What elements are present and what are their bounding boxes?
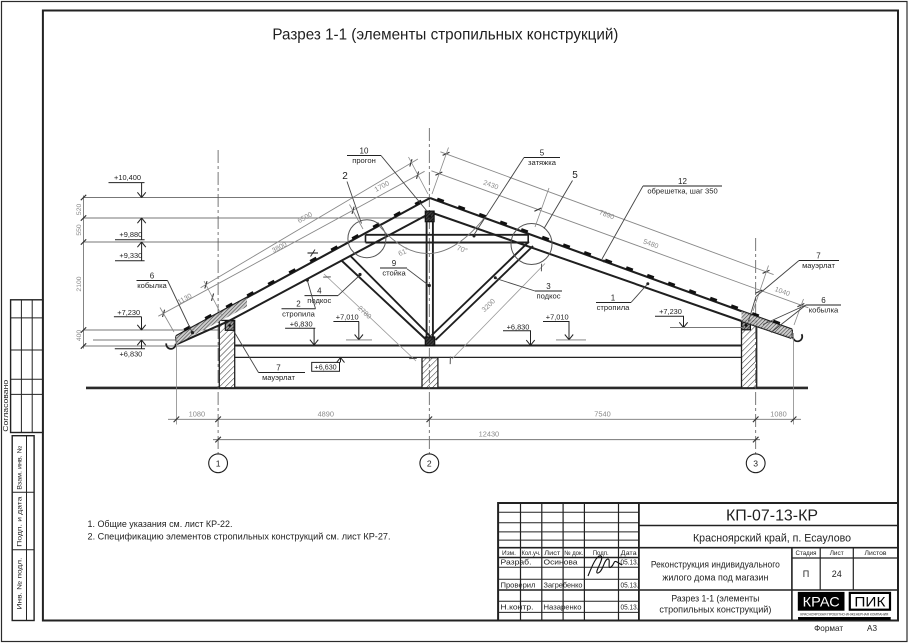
svg-text:1: 1 <box>216 459 221 469</box>
svg-text:Разраб.: Разраб. <box>501 558 532 567</box>
svg-text:Назаренко: Назаренко <box>544 602 582 611</box>
svg-text:стропила: стропила <box>282 309 316 318</box>
svg-text:12: 12 <box>678 177 687 186</box>
svg-text:7: 7 <box>816 252 821 261</box>
svg-text:А3: А3 <box>867 624 877 633</box>
svg-text:КРАС: КРАС <box>803 595 840 610</box>
svg-text:+6,830: +6,830 <box>119 349 142 358</box>
svg-text:Загребенко: Загребенко <box>544 580 583 589</box>
svg-text:Лист: Лист <box>544 550 560 557</box>
svg-text:КП-07-13-КР: КП-07-13-КР <box>726 508 818 525</box>
svg-text:+9,880: +9,880 <box>119 230 142 239</box>
svg-text:+7,230: +7,230 <box>659 307 682 316</box>
svg-text:1080: 1080 <box>189 409 205 418</box>
svg-text:Разрез 1-1 (элементы: Разрез 1-1 (элементы <box>671 594 759 604</box>
svg-text:2: 2 <box>427 459 432 469</box>
svg-text:9: 9 <box>392 259 397 268</box>
svg-text:Стадия: Стадия <box>796 550 817 557</box>
svg-text:мауэрлат: мауэрлат <box>262 373 295 382</box>
svg-text:+7,010: +7,010 <box>336 313 359 322</box>
svg-text:550: 550 <box>76 224 83 236</box>
svg-text:Подп. и дата: Подп. и дата <box>17 496 24 547</box>
svg-text:+6,830: +6,830 <box>507 322 530 331</box>
svg-text:7: 7 <box>276 364 281 373</box>
svg-text:5: 5 <box>572 170 578 181</box>
svg-text:Дата: Дата <box>621 550 637 557</box>
svg-text:6: 6 <box>150 272 155 281</box>
svg-text:5: 5 <box>540 149 545 158</box>
svg-text:стойка: стойка <box>382 269 406 278</box>
svg-text:4890: 4890 <box>318 409 334 418</box>
svg-text:Проверил: Проверил <box>501 580 536 589</box>
svg-text:кобылка: кобылка <box>809 306 839 315</box>
svg-text:400: 400 <box>76 330 83 342</box>
svg-text:+7,230: +7,230 <box>117 308 140 317</box>
svg-text:мауэрлат: мауэрлат <box>802 261 835 270</box>
svg-text:2100: 2100 <box>76 276 83 291</box>
svg-text:Листов: Листов <box>865 550 887 557</box>
svg-text:24: 24 <box>832 569 842 579</box>
svg-text:затяжка: затяжка <box>528 158 557 167</box>
svg-text:3: 3 <box>753 459 758 469</box>
svg-text:Реконструкция индивидуального: Реконструкция индивидуального <box>651 560 780 571</box>
svg-text:Взам. инв. №: Взам. инв. № <box>17 446 24 490</box>
svg-text:ПИК: ПИК <box>854 594 885 609</box>
svg-text:Согласовано: Согласовано <box>3 380 10 432</box>
svg-text:Осинова: Осинова <box>544 558 579 567</box>
svg-text:05.13.: 05.13. <box>621 558 639 567</box>
svg-text:2: 2 <box>342 171 348 182</box>
svg-text:4: 4 <box>317 287 322 296</box>
svg-text:05.13.: 05.13. <box>621 580 639 589</box>
svg-text:Кол.уч.: Кол.уч. <box>522 550 541 557</box>
svg-text:кобылка: кобылка <box>137 281 167 290</box>
svg-text:Лист: Лист <box>830 550 844 557</box>
svg-text:1: 1 <box>611 294 616 303</box>
svg-text:Красноярский край, п. Есаулово: Красноярский край, п. Есаулово <box>693 533 851 545</box>
svg-text:обрешетка, шаг 350: обрешетка, шаг 350 <box>647 187 717 196</box>
svg-text:стропила: стропила <box>597 303 631 312</box>
svg-text:7540: 7540 <box>594 409 610 418</box>
svg-text:6: 6 <box>821 296 826 305</box>
svg-text:10: 10 <box>360 147 369 156</box>
svg-text:Разрез 1-1 (элементы стропильн: Разрез 1-1 (элементы стропильных констру… <box>272 27 618 44</box>
svg-text:2: 2 <box>296 300 301 309</box>
svg-text:подкос: подкос <box>307 296 331 305</box>
svg-text:2. Спецификацию элементов стро: 2. Спецификацию элементов стропильных ко… <box>88 532 391 542</box>
svg-text:05.13.: 05.13. <box>621 602 639 611</box>
svg-text:№ док.: № док. <box>564 550 583 557</box>
svg-text:+6,830: +6,830 <box>290 319 313 328</box>
svg-text:прогон: прогон <box>352 156 376 165</box>
svg-text:+7,010: +7,010 <box>546 313 569 322</box>
svg-text:Формат: Формат <box>814 623 843 633</box>
svg-text:+9,330: +9,330 <box>119 251 142 260</box>
svg-text:подкос: подкос <box>536 292 560 301</box>
svg-text:Инв. № подл.: Инв. № подл. <box>17 557 24 609</box>
svg-text:Н.контр.: Н.контр. <box>501 602 534 611</box>
svg-text:520: 520 <box>76 204 83 216</box>
svg-text:3: 3 <box>546 282 551 291</box>
svg-text:П: П <box>803 569 809 579</box>
svg-text:КРАСНОЯРСКАЯ ПРОЕКТНО-ИНЖЕНЕРН: КРАСНОЯРСКАЯ ПРОЕКТНО-ИНЖЕНЕРНАЯ КОМПАНИ… <box>800 613 888 617</box>
svg-text:жилого дома под магазин: жилого дома под магазин <box>662 573 768 584</box>
svg-text:+6,630: +6,630 <box>315 363 337 372</box>
svg-text:1. Общие указания см. лист КР-: 1. Общие указания см. лист КР-22. <box>88 519 233 529</box>
svg-text:12430: 12430 <box>479 430 500 439</box>
svg-text:+10,400: +10,400 <box>114 173 141 182</box>
svg-text:1080: 1080 <box>770 409 786 418</box>
svg-text:стропильных конструкций): стропильных конструкций) <box>659 605 771 615</box>
svg-text:Изм.: Изм. <box>502 550 516 557</box>
